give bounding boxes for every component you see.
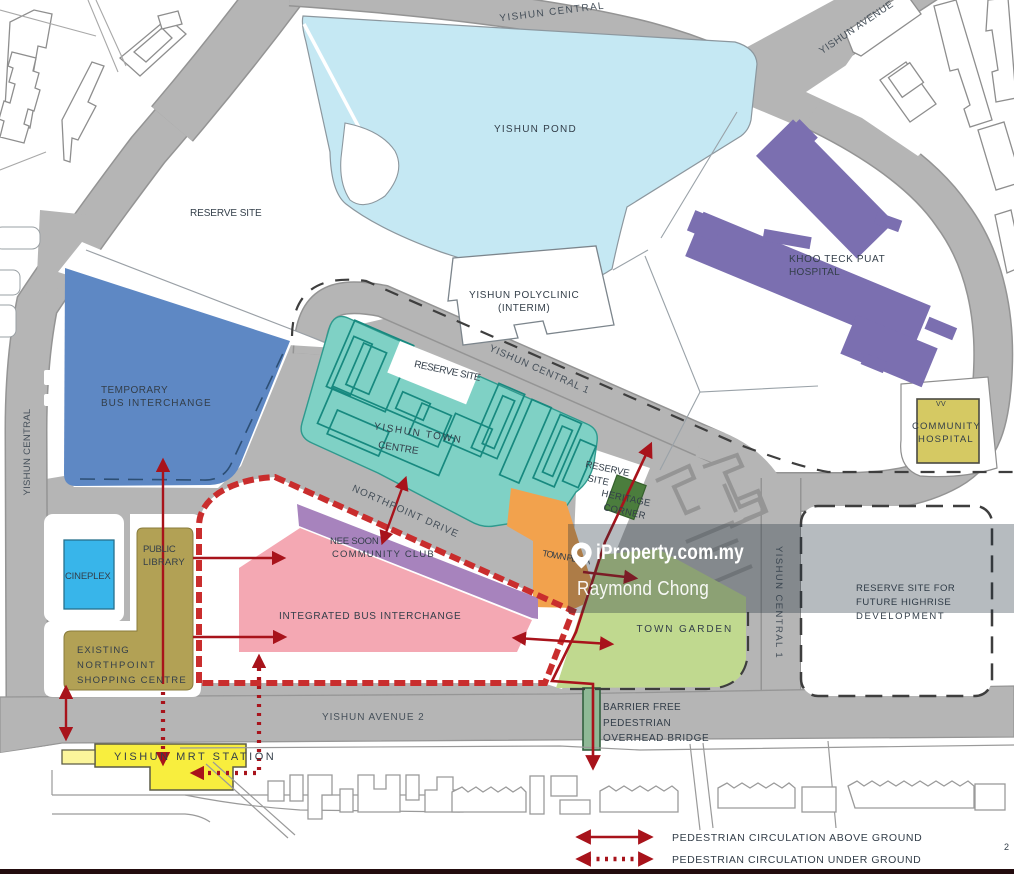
svg-text:NORTHPOINT: NORTHPOINT [77,660,155,671]
svg-text:PEDESTRIAN: PEDESTRIAN [603,718,671,729]
svg-text:NEE SOON: NEE SOON [330,536,379,547]
svg-text:SHOPPING CENTRE: SHOPPING CENTRE [77,675,186,686]
svg-text:COMMUNITY: COMMUNITY [912,421,980,432]
svg-text:HOSPITAL: HOSPITAL [789,267,840,278]
svg-text:YISHUN POND: YISHUN POND [494,124,576,135]
svg-text:RESERVE SITE: RESERVE SITE [190,208,262,219]
svg-text:VV: VV [936,401,946,408]
svg-text:Raymond Chong: Raymond Chong [577,577,709,600]
svg-text:YISHUN AVENUE 2: YISHUN AVENUE 2 [322,712,424,723]
svg-text:PEDESTRIAN CIRCULATION UNDER G: PEDESTRIAN CIRCULATION UNDER GROUND [672,854,921,866]
svg-text:PEDESTRIAN CIRCULATION ABOVE G: PEDESTRIAN CIRCULATION ABOVE GROUND [672,832,922,844]
svg-text:OVERHEAD BRIDGE: OVERHEAD BRIDGE [603,733,709,744]
svg-text:TEMPORARY: TEMPORARY [101,385,168,396]
svg-text:PUBLIC: PUBLIC [143,544,176,555]
svg-text:COMMUNITY CLUB: COMMUNITY CLUB [332,549,434,560]
svg-text:(INTERIM): (INTERIM) [498,303,550,314]
svg-text:YISHUN CENTRAL: YISHUN CENTRAL [22,409,33,496]
svg-text:TOWN GARDEN: TOWN GARDEN [637,624,732,635]
svg-text:LIBRARY: LIBRARY [143,557,185,568]
svg-text:HOSPITAL: HOSPITAL [918,434,973,445]
svg-text:YISHUN POLYCLINIC: YISHUN POLYCLINIC [469,290,579,301]
svg-text:EXISTING: EXISTING [77,645,129,656]
svg-text:CINEPLEX: CINEPLEX [65,571,111,582]
svg-text:BUS INTERCHANGE: BUS INTERCHANGE [101,398,211,409]
svg-text:KHOO TECK PUAT: KHOO TECK PUAT [789,254,885,265]
svg-text:iProperty.com.my: iProperty.com.my [596,541,744,564]
svg-text:BARRIER FREE: BARRIER FREE [603,702,681,713]
svg-text:2: 2 [1004,842,1009,852]
svg-text:INTEGRATED BUS INTERCHANGE: INTEGRATED BUS INTERCHANGE [279,611,461,622]
